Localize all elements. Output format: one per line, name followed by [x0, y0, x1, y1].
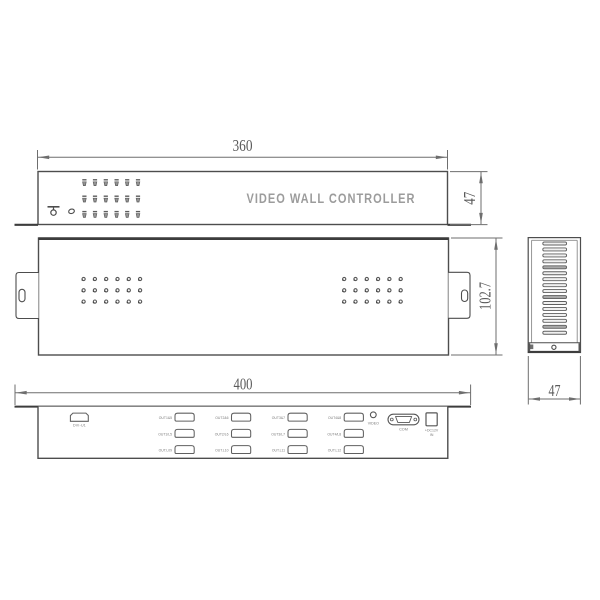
svg-text:+DC12V: +DC12V: [425, 429, 439, 433]
svg-text:OUT1/L5: OUT1/L5: [158, 432, 172, 436]
svg-text:OUT2/L6: OUT2/L6: [215, 432, 229, 436]
svg-text:OUT4&8: OUT4&8: [328, 416, 341, 420]
svg-text:OUT.L10: OUT.L10: [215, 449, 228, 453]
svg-text:DVI-U1: DVI-U1: [73, 424, 86, 428]
svg-text:IN: IN: [430, 433, 434, 437]
svg-text:102.7: 102.7: [476, 282, 495, 310]
svg-text:COM: COM: [399, 428, 408, 432]
svg-text:360: 360: [233, 136, 253, 155]
svg-text:47: 47: [549, 381, 561, 400]
svg-text:OUT.L11: OUT.L11: [272, 449, 285, 453]
svg-text:VIDEO: VIDEO: [368, 422, 379, 426]
svg-text:OUT.L12: OUT.L12: [328, 449, 341, 453]
svg-text:OUT3&7: OUT3&7: [272, 416, 285, 420]
svg-text:400: 400: [234, 375, 253, 394]
svg-text:OUT4/L8: OUT4/L8: [327, 432, 341, 436]
svg-text:OUT3/L7: OUT3/L7: [271, 432, 285, 436]
svg-text:OUT.L09: OUT.L09: [159, 449, 172, 453]
svg-text:OUT2&6: OUT2&6: [215, 416, 228, 420]
svg-text:VIDEO WALL CONTROLLER: VIDEO WALL CONTROLLER: [247, 191, 416, 206]
svg-text:OUT1&5: OUT1&5: [159, 416, 172, 420]
svg-text:47: 47: [460, 191, 479, 204]
